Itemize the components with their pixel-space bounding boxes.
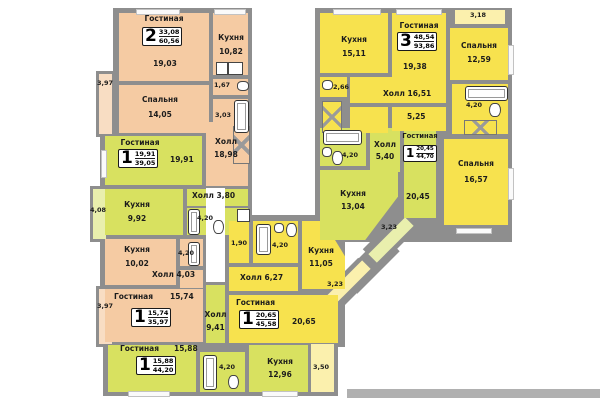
bathtub-icon (234, 100, 249, 133)
sink-icon (322, 80, 333, 90)
bathtub-icon (256, 224, 271, 255)
room-label: Кухня (330, 36, 378, 44)
room-label: Гостиная (112, 139, 168, 147)
room-label: Кухня (258, 358, 302, 366)
area-label: 3,23 (381, 224, 397, 231)
window (396, 9, 442, 15)
room-living-2045 (404, 128, 436, 218)
bathtub-icon (323, 130, 362, 145)
window (214, 9, 246, 15)
room-kitchen-1296 (249, 345, 308, 392)
area-label: 20,45 (406, 193, 430, 201)
toilet-icon (213, 220, 224, 234)
closet-hatch-icon (464, 120, 497, 135)
sink-icon (237, 81, 249, 91)
window (262, 391, 298, 397)
elevator-shaft-icon (322, 101, 342, 133)
area-label: 20,65 (292, 318, 316, 326)
room-label: Холл (207, 138, 245, 146)
area-label: 4,20 (342, 152, 358, 159)
area-label: 3,23 (327, 281, 343, 288)
total-area: 60,56 (159, 37, 180, 45)
room-label: Гостиная (114, 293, 153, 301)
room-label: Кухня (112, 246, 162, 254)
apartment-badge-3905: 1 19,9139,05 (118, 149, 158, 168)
area-label: 9,92 (112, 215, 162, 223)
area-label: 13,04 (330, 203, 376, 211)
washer-icon (237, 209, 250, 222)
area-label: 11,05 (300, 260, 342, 268)
area-label: 5,40 (371, 153, 399, 161)
total-area: 35,97 (148, 318, 169, 326)
area-label: 4,20 (197, 215, 213, 222)
area-label: 12,96 (258, 371, 302, 379)
sink-icon (274, 223, 284, 233)
area-label: 2,66 (333, 84, 349, 91)
area-label: 9,41 (203, 324, 228, 332)
area-label: 18,98 (207, 151, 245, 159)
window (333, 9, 381, 15)
room-kitchen-992 (105, 189, 183, 235)
living-area: 20,65 (256, 311, 277, 320)
total-area: 39,05 (135, 159, 156, 167)
room-label: Холл (203, 311, 228, 319)
room-label: Гостиная (400, 133, 440, 140)
room-label: Холл 6,27 (240, 274, 283, 282)
window (128, 391, 170, 397)
apartment-badge-4420: 1 15,8844,20 (136, 356, 176, 375)
room-bedroom-1405 (119, 85, 209, 133)
room-label: Гостиная (137, 15, 191, 23)
living-area: 15,74 (148, 309, 169, 318)
area-label: 19,38 (403, 63, 427, 71)
rooms-count: 3 (400, 33, 412, 50)
living-area: 33,08 (159, 28, 180, 37)
area-label: 4,20 (272, 242, 288, 249)
room-label: Гостиная (392, 22, 446, 30)
total-area: 93,86 (414, 42, 435, 50)
area-label: 4,08 (90, 207, 106, 214)
bathtub-icon (465, 86, 508, 101)
area-label: 19,03 (150, 60, 180, 68)
area-label: 3,97 (97, 80, 113, 87)
rooms-count: 1 (134, 309, 146, 326)
living-area: 15,88 (153, 357, 174, 366)
total-area: 44,70 (416, 154, 433, 161)
room-hall-540 (370, 128, 400, 172)
area-label: 3,50 (313, 364, 329, 371)
living-area: 19,91 (135, 150, 156, 159)
area-label: 19,91 (170, 156, 194, 164)
rooms-count: 1 (121, 150, 133, 167)
total-area: 45,58 (256, 320, 277, 328)
room-label: Кухня (300, 247, 342, 255)
area-label: 4,20 (178, 250, 194, 257)
living-area: 20,45 (416, 146, 433, 154)
window (508, 45, 514, 75)
window (101, 150, 107, 178)
room-label: Спальня (130, 96, 190, 104)
rooms-count: 1 (406, 147, 414, 159)
room-bedroom-1259 (450, 28, 508, 80)
area-label: 16,57 (450, 176, 502, 184)
room-label: Спальня (450, 160, 502, 168)
rooms-count: 2 (145, 28, 157, 45)
toilet-icon (286, 223, 297, 237)
area-label: 14,05 (130, 111, 190, 119)
area-label: 10,02 (112, 260, 162, 268)
sink-icon (322, 147, 332, 157)
kitchen-counter-icon (216, 62, 228, 75)
area-label: 15,88 (174, 345, 198, 353)
area-label: 10,82 (216, 48, 246, 56)
kitchen-counter-icon (228, 62, 243, 75)
apartment-badge-3597: 1 15,7435,97 (131, 308, 171, 327)
adjacent-section-wall (347, 389, 600, 398)
bathtub-icon (203, 355, 217, 390)
room-label: Холл 4,03 (152, 271, 195, 279)
area-label: 3,18 (470, 12, 486, 19)
area-label: 5,25 (407, 113, 426, 121)
room-label: Кухня (112, 201, 162, 209)
room-label: Гостиная (236, 299, 275, 307)
room-label: Кухня (330, 190, 376, 198)
rooms-count: 1 (242, 311, 254, 328)
stairwell (206, 188, 225, 282)
area-label: 1,67 (214, 82, 230, 89)
area-label: 15,74 (170, 293, 194, 301)
apartment-badge-9386: 3 48,5493,86 (397, 32, 437, 51)
toilet-icon (228, 375, 239, 389)
apartment-badge-4470: 1 20,4544,70 (403, 145, 437, 162)
room-label: Спальня (452, 42, 506, 50)
window (456, 228, 492, 234)
toilet-icon (489, 103, 501, 117)
room-label: Холл (371, 141, 399, 149)
area-label: 4,20 (466, 102, 482, 109)
area-label: 3,97 (97, 303, 113, 310)
area-label: 1,90 (231, 240, 247, 247)
area-label: 15,11 (330, 50, 378, 58)
floor-plan: Гостиная 2 33,0860,56 19,03 Кухня 10,82 … (0, 0, 600, 400)
area-label: 12,59 (452, 56, 506, 64)
apartment-badge-6056: 2 33,0860,56 (142, 27, 182, 46)
area-label: 4,20 (219, 364, 235, 371)
room-label: Холл 16,51 (383, 90, 431, 98)
area-label: 3,03 (215, 112, 231, 119)
room-label: Гостиная (120, 345, 159, 353)
living-area: 48,54 (414, 33, 435, 42)
window (508, 168, 514, 200)
room-label: Холл 3,80 (192, 192, 235, 200)
total-area: 44,20 (153, 366, 174, 374)
apartment-badge-4558: 1 20,6545,58 (239, 310, 279, 329)
room-label: Кухня (216, 34, 246, 42)
rooms-count: 1 (139, 357, 151, 374)
